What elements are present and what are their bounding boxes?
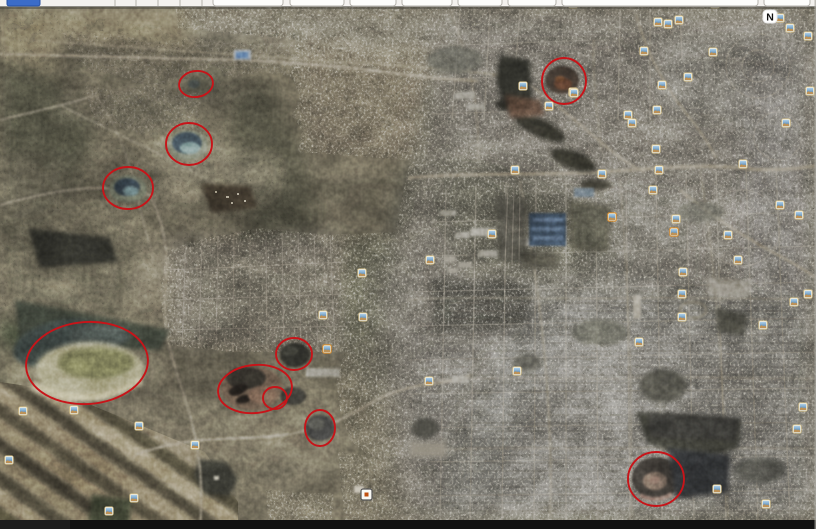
svg-text:N: N bbox=[766, 12, 774, 24]
